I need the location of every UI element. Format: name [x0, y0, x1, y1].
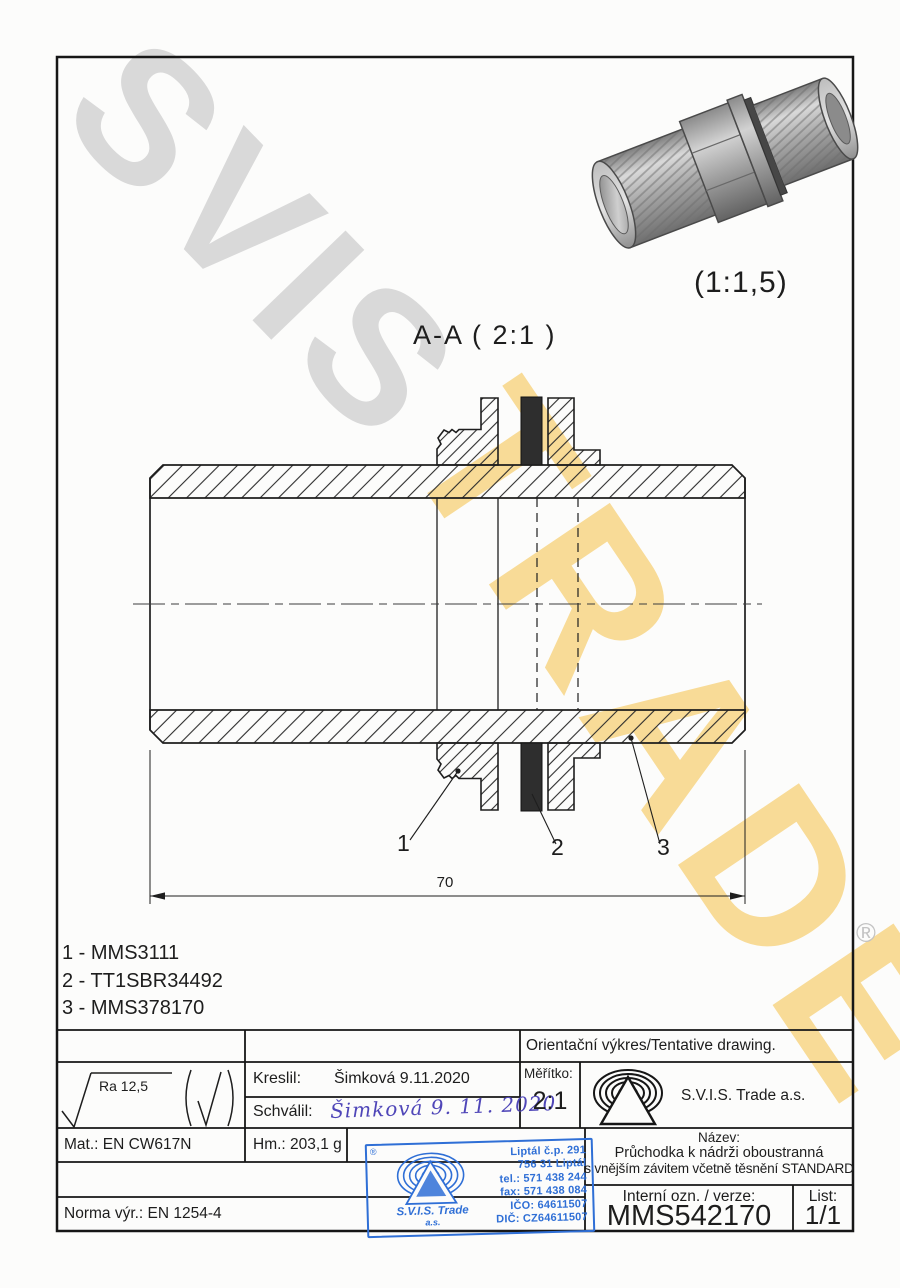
part2-gasket-top: [521, 397, 542, 465]
weight-field: Hm.: 203,1 g: [253, 1136, 342, 1154]
section-title: A-A ( 2:1 ): [413, 320, 557, 351]
material-field: Mat.: EN CW617N: [64, 1136, 191, 1154]
part3-nut-top: [548, 398, 600, 465]
part-list-item-1: 1 - MMS3111: [62, 940, 223, 968]
tube-bottom-wall: [150, 710, 745, 743]
part1-hex-bottom: [437, 743, 498, 810]
company-logo: [594, 1070, 662, 1124]
meritko-value: 2:1: [520, 1087, 580, 1116]
dimension-70-text: 70: [400, 874, 490, 891]
company-stamp: ® S.V.I.S. Trade a.s. Liptál č.p. 291 75…: [365, 1138, 596, 1238]
part2-gasket-bottom: [521, 743, 542, 811]
tube-top-wall: [150, 465, 745, 498]
kreslil-value: Šimková 9.11.2020: [334, 1070, 470, 1088]
stamp-logo: [375, 1147, 487, 1210]
ra-label: Ra 12,5: [99, 1078, 148, 1094]
part3-nut-bottom: [548, 743, 600, 810]
stamp-address: Liptál č.p. 291 756 31 Liptál tel.: 571 …: [494, 1144, 588, 1227]
meritko-label: Měřítko:: [524, 1066, 573, 1081]
list-value: 1/1: [793, 1200, 853, 1231]
stamp-company-name: S.V.I.S. Trade a.s.: [381, 1205, 486, 1230]
part-list-item-3: 3 - MMS378170: [62, 995, 223, 1023]
part-3d-render: [580, 61, 871, 263]
callout-2-label: 2: [551, 834, 564, 861]
company-name: S.V.I.S. Trade a.s.: [681, 1087, 805, 1105]
kreslil-label: Kreslil:: [253, 1070, 301, 1088]
tentative-note: Orientační výkres/Tentative drawing.: [526, 1037, 776, 1055]
callout-3-label: 3: [657, 834, 670, 861]
part-list-item-2: 2 - TT1SBR34492: [62, 968, 223, 996]
stamp-address-line: DIČ: CZ64611507: [496, 1211, 588, 1227]
stamp-company-line2: a.s.: [425, 1217, 440, 1227]
nazev-line2: s vnějším závitem včetně těsnění STANDAR…: [583, 1161, 855, 1176]
nazev-label: Název:: [585, 1130, 853, 1145]
part1-hex-top: [437, 398, 498, 465]
parts-list: 1 - MMS3111 2 - TT1SBR34492 3 - MMS37817…: [62, 940, 223, 1023]
drawing-sheet: SVIS TRADE ®: [0, 0, 900, 1288]
interni-value: MMS542170: [585, 1200, 793, 1233]
nazev-line1: Průchodka k nádrži oboustranná: [585, 1145, 853, 1161]
schvalil-label: Schválil:: [253, 1103, 313, 1121]
callout-1-label: 1: [397, 830, 410, 857]
render-scale-label: (1:1,5): [694, 266, 788, 300]
norma-field: Norma výr.: EN 1254-4: [64, 1205, 222, 1223]
section-view: [133, 397, 762, 904]
